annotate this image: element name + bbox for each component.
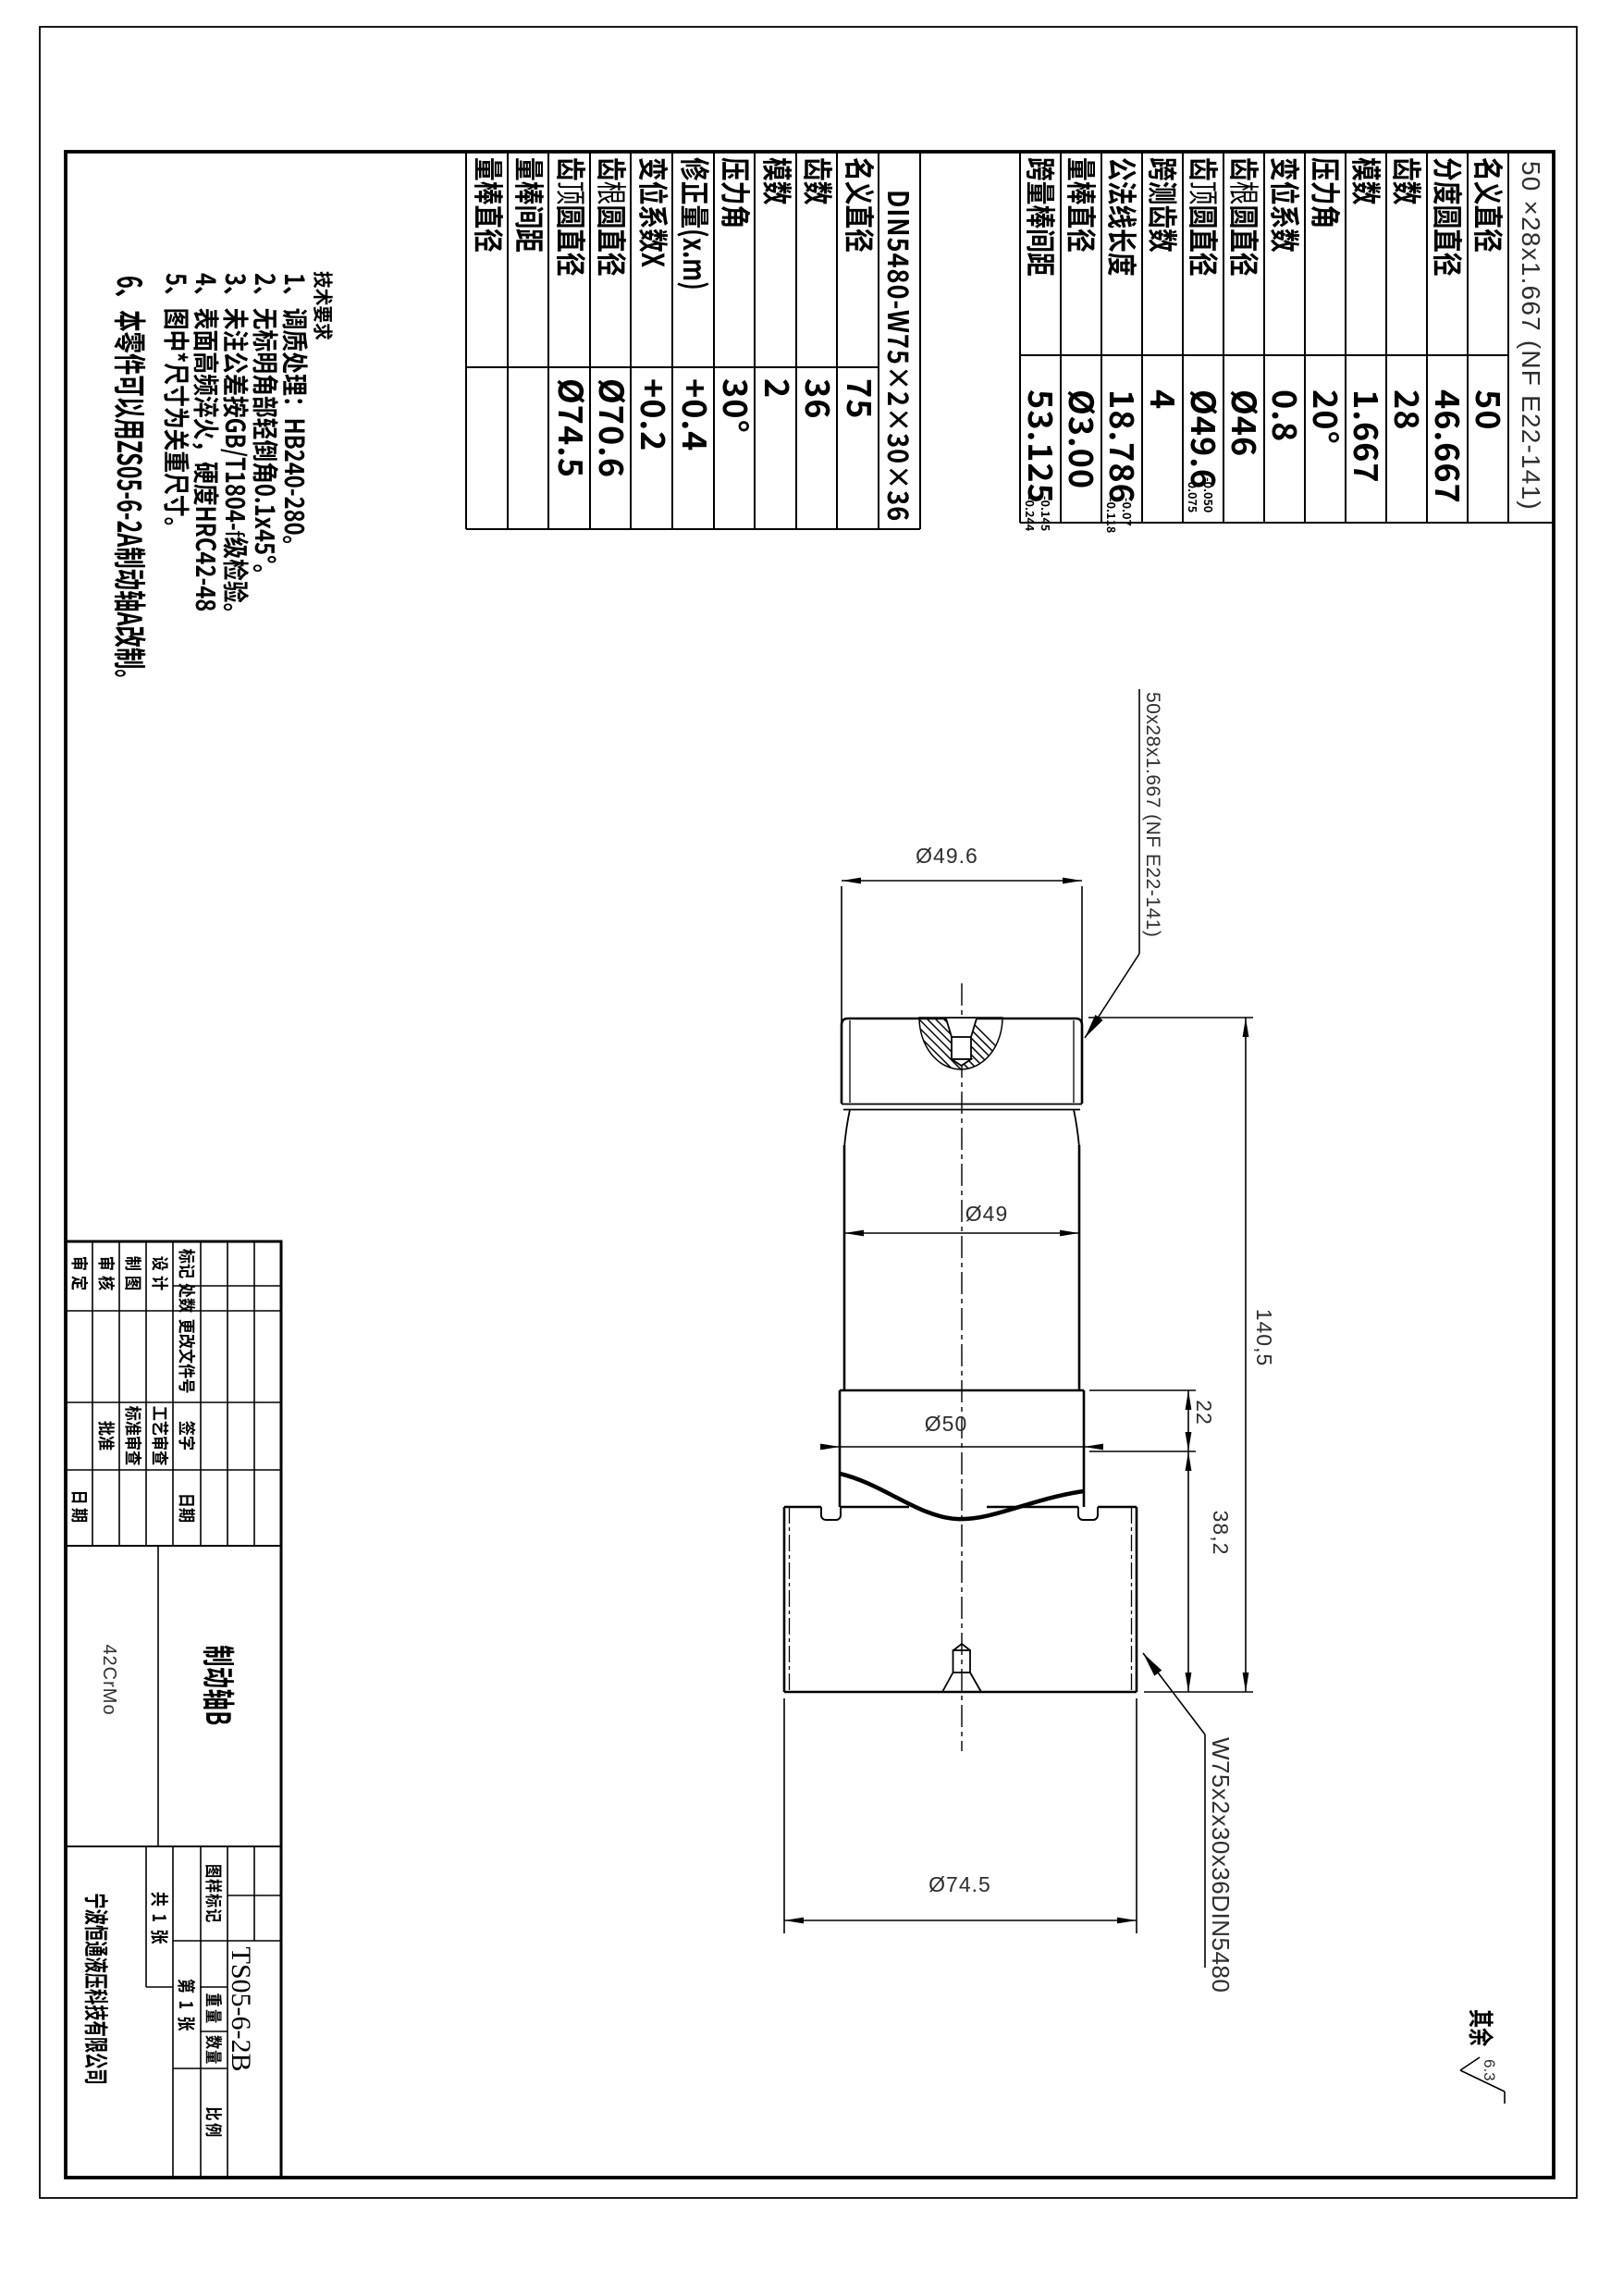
svg-text:53.125: 53.125 xyxy=(1018,389,1066,504)
svg-text:日期: 日期 xyxy=(175,1493,200,1523)
svg-text:齿根圆直径: 齿根圆直径 xyxy=(1223,157,1268,277)
svg-text:模数: 模数 xyxy=(1346,157,1390,205)
svg-text:更改文件号: 更改文件号 xyxy=(175,1319,200,1394)
svg-text:-0.244: -0.244 xyxy=(1022,496,1039,532)
svg-text:量棒间距: 量棒间距 xyxy=(509,157,553,253)
svg-text:齿数: 齿数 xyxy=(1386,157,1431,205)
svg-text:Ø74.5: Ø74.5 xyxy=(548,378,596,478)
svg-text:重量: 重量 xyxy=(202,1993,227,2025)
svg-text:Ø49: Ø49 xyxy=(965,1202,1008,1226)
svg-text:6、本零件可以用ZS05-6-2A制动轴A改制。: 6、本零件可以用ZS05-6-2A制动轴A改制。 xyxy=(107,276,155,691)
svg-text:变位系数X: 变位系数X xyxy=(633,157,677,267)
svg-text:宁波恒通液压科技有限公司: 宁波恒通液压科技有限公司 xyxy=(80,1893,116,2084)
svg-text:标准审查: 标准审查 xyxy=(121,1406,146,1466)
svg-text:制图: 制图 xyxy=(121,1256,146,1295)
svg-text:齿根圆直径: 齿根圆直径 xyxy=(591,157,635,277)
svg-text:其余: 其余 xyxy=(1463,2009,1500,2047)
svg-text:公法线长度: 公法线长度 xyxy=(1101,157,1146,277)
svg-text:Ø74.5: Ø74.5 xyxy=(928,1872,991,1896)
svg-text:50 ×28x1.667 (NF E22-141): 50 ×28x1.667 (NF E22-141) xyxy=(1517,161,1545,511)
svg-text:日期: 日期 xyxy=(68,1489,92,1525)
svg-text:140,5: 140,5 xyxy=(1252,1309,1276,1367)
svg-text:齿顶圆直径: 齿顶圆直径 xyxy=(550,157,595,277)
svg-text:第 1 张: 第 1 张 xyxy=(173,1979,200,2032)
svg-text:设计: 设计 xyxy=(148,1256,173,1295)
svg-text:-0.075: -0.075 xyxy=(1185,477,1202,512)
svg-text:比例: 比例 xyxy=(202,2106,227,2139)
svg-text:22: 22 xyxy=(1192,1400,1216,1426)
svg-text:38,2: 38,2 xyxy=(1209,1511,1233,1556)
svg-text:齿数: 齿数 xyxy=(797,157,842,205)
svg-text:W75x2x30x36DIN5480: W75x2x30x36DIN5480 xyxy=(1207,1737,1235,1993)
svg-text:5、图中*尺寸为关重尺寸。: 5、图中*尺寸为关重尺寸。 xyxy=(158,273,198,538)
svg-text:跨测齿数: 跨测齿数 xyxy=(1142,157,1187,253)
svg-text:图样标记: 图样标记 xyxy=(202,1864,227,1923)
svg-text:工艺审查: 工艺审查 xyxy=(148,1406,173,1466)
svg-text:共 1 张: 共 1 张 xyxy=(146,1892,173,1945)
svg-text:标记: 标记 xyxy=(175,1249,200,1279)
svg-text:50x28x1.667 (NF E22-141): 50x28x1.667 (NF E22-141) xyxy=(1142,692,1163,937)
svg-text:修正量(x.m): 修正量(x.m) xyxy=(674,157,719,290)
svg-text:签字: 签字 xyxy=(175,1421,200,1450)
svg-text:齿顶圆直径: 齿顶圆直径 xyxy=(1183,157,1227,277)
svg-text:TS05-6-2B: TS05-6-2B xyxy=(226,1947,256,2072)
svg-text:6.3: 6.3 xyxy=(1481,2059,1498,2081)
svg-text:名义直径: 名义直径 xyxy=(1468,157,1512,253)
svg-text:跨量棒间距: 跨量棒间距 xyxy=(1020,157,1064,277)
svg-text:-0.118: -0.118 xyxy=(1103,498,1121,533)
svg-text:名义直径: 名义直径 xyxy=(839,157,883,253)
svg-text:42CrMo: 42CrMo xyxy=(99,1644,119,1715)
svg-text:变位系数: 变位系数 xyxy=(1264,157,1309,253)
svg-text:模数: 模数 xyxy=(756,157,801,205)
svg-text:数量: 数量 xyxy=(202,2035,227,2065)
svg-text:Ø50: Ø50 xyxy=(925,1412,967,1436)
svg-text:制动轴B: 制动轴B xyxy=(196,1645,244,1725)
svg-text:压力角: 压力角 xyxy=(1305,157,1349,228)
svg-text:批准: 批准 xyxy=(94,1421,119,1451)
svg-text:审核: 审核 xyxy=(94,1256,119,1295)
svg-text:审定: 审定 xyxy=(68,1256,92,1295)
svg-text:处数: 处数 xyxy=(175,1283,200,1314)
svg-text:压力角: 压力角 xyxy=(715,157,759,228)
svg-text:量棒直径: 量棒直径 xyxy=(468,157,512,253)
svg-text:量棒直径: 量棒直径 xyxy=(1061,157,1105,253)
svg-text:分度圆直径: 分度圆直径 xyxy=(1427,157,1471,277)
svg-text:DIN5480-W75×2×30×36: DIN5480-W75×2×30×36 xyxy=(879,190,920,522)
svg-text:Ø49.6: Ø49.6 xyxy=(916,844,978,868)
